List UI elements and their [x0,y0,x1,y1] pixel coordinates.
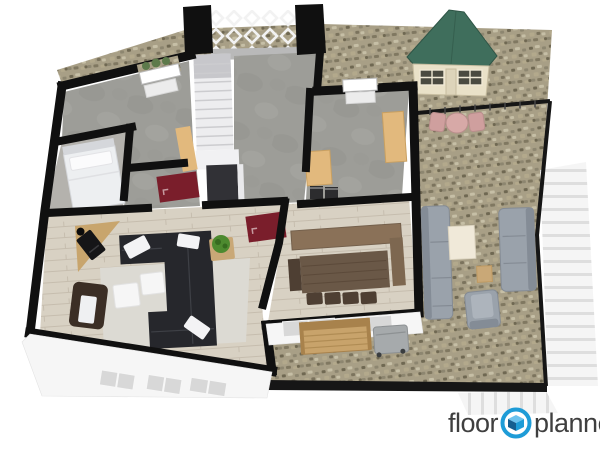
dining-chair [324,292,341,305]
red-doormat [156,171,199,202]
plant-side-table [209,235,235,261]
bistro-chair [468,112,485,132]
wall-stub-left [183,5,213,55]
garden-bench [299,318,372,355]
wall-stub-right [295,4,326,55]
logo-word-right: planner [534,408,600,438]
bistro-set [429,112,485,133]
dining-table [300,250,390,293]
single-bed [62,138,125,212]
desk [382,111,406,162]
bush [152,59,161,68]
lattice-trellis [211,10,298,60]
coffee-table [113,282,141,308]
bistro-table [446,113,468,133]
floor-plan-render: floor planner [0,0,600,450]
shed-door [446,69,456,95]
storage-box [373,325,409,358]
bistro-chair [429,112,446,132]
office-window [342,71,379,104]
outdoor-coffee-table [448,225,476,259]
outdoor-armchair [464,289,501,329]
shed-window-right [458,70,482,85]
bush [142,62,150,70]
dining-chair [360,291,377,304]
dining-chair [288,259,302,292]
outdoor-sofa-long [421,206,453,320]
potted-plant [212,235,230,253]
coffee-table [140,272,165,296]
outdoor-side-table [477,266,493,283]
outdoor-sofa-short [499,207,537,291]
shed-window-left [420,70,444,85]
dining-chair [342,292,359,305]
floorplanner-logo[interactable]: floor planner [448,408,600,438]
logo-word-left: floor [448,408,499,438]
brown-armchair [68,281,108,330]
bush [162,57,170,65]
dining-chair [306,292,323,305]
